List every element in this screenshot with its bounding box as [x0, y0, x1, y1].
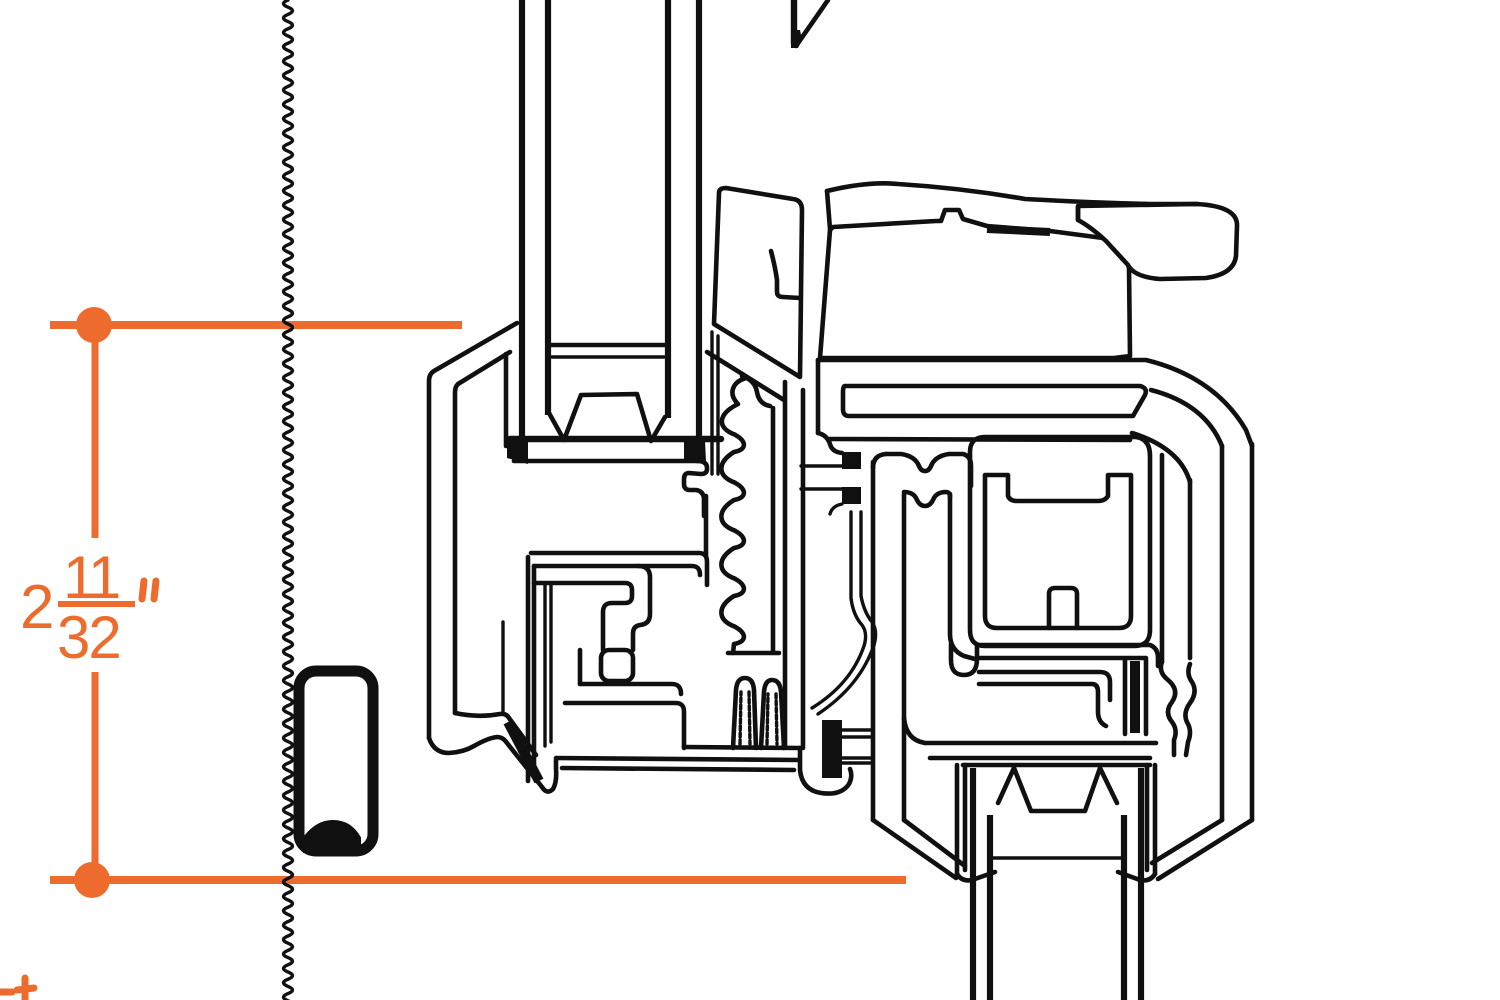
svg-text:2: 2: [20, 573, 54, 642]
svg-text:32: 32: [57, 604, 120, 671]
svg-text:11: 11: [63, 544, 119, 611]
